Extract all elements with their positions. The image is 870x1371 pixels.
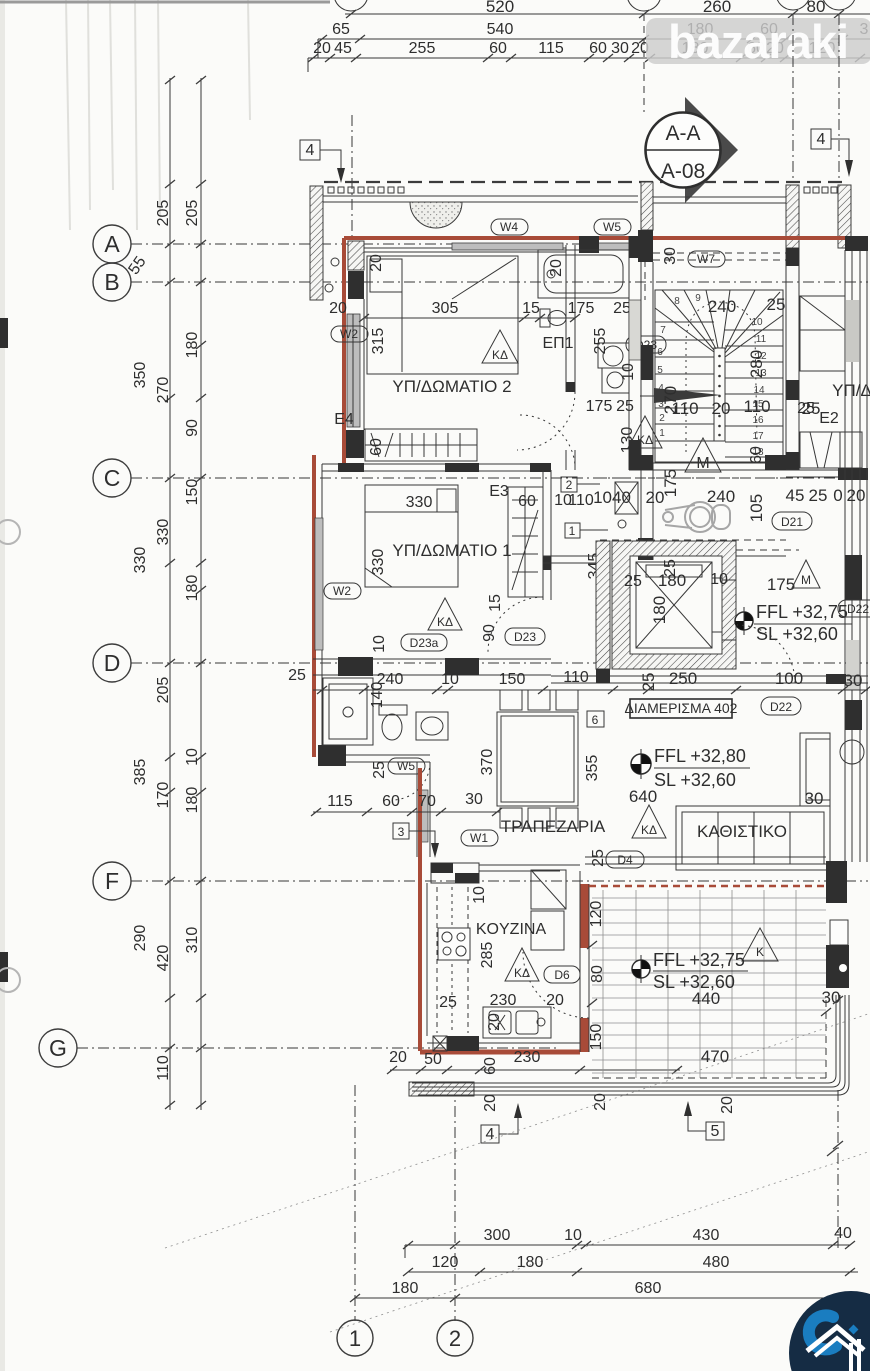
svg-text:90: 90	[184, 419, 201, 437]
svg-text:5: 5	[657, 365, 663, 376]
svg-text:330: 330	[132, 547, 149, 574]
svg-text:440: 440	[692, 989, 720, 1008]
svg-text:4: 4	[817, 131, 826, 148]
svg-text:480: 480	[703, 1254, 730, 1271]
svg-text:25: 25	[809, 486, 828, 505]
svg-text:W2: W2	[340, 327, 358, 341]
svg-text:SL +32,60: SL +32,60	[756, 624, 838, 644]
svg-text:20: 20	[548, 259, 565, 277]
svg-text:2: 2	[449, 1326, 461, 1351]
svg-text:50: 50	[424, 1051, 442, 1068]
svg-text:30: 30	[805, 789, 824, 808]
svg-text:180: 180	[650, 596, 669, 624]
svg-text:W4: W4	[500, 220, 518, 234]
svg-text:D: D	[104, 650, 121, 676]
svg-text:W1: W1	[470, 831, 488, 845]
svg-text:255: 255	[592, 328, 609, 355]
svg-text:0: 0	[833, 486, 842, 505]
svg-text:E3: E3	[489, 483, 509, 500]
svg-text:540: 540	[487, 21, 514, 38]
svg-text:280: 280	[747, 350, 766, 378]
svg-text:255: 255	[409, 40, 436, 57]
svg-text:ΚΔ: ΚΔ	[437, 615, 453, 629]
svg-text:KOYZINA: KOYZINA	[476, 921, 547, 938]
svg-text:25: 25	[439, 994, 457, 1011]
svg-text:1: 1	[659, 428, 665, 439]
svg-text:680: 680	[635, 1280, 662, 1297]
svg-text:110: 110	[155, 1055, 172, 1081]
svg-text:310: 310	[184, 927, 201, 954]
svg-text:170: 170	[155, 782, 172, 809]
svg-text:M: M	[801, 573, 811, 587]
svg-text:180: 180	[184, 332, 201, 359]
svg-text:ΥΠ/Δ: ΥΠ/Δ	[832, 381, 870, 400]
svg-text:10: 10	[471, 886, 488, 904]
svg-text:180: 180	[184, 787, 201, 814]
svg-text:180: 180	[517, 1254, 544, 1271]
svg-text:W5: W5	[603, 220, 621, 234]
svg-text:A-08: A-08	[661, 160, 705, 183]
svg-text:330: 330	[406, 494, 433, 511]
svg-text:60: 60	[368, 438, 385, 456]
svg-text:240: 240	[707, 487, 735, 506]
svg-text:240: 240	[708, 297, 736, 316]
svg-text:175: 175	[767, 575, 795, 594]
svg-text:25: 25	[624, 573, 642, 590]
svg-text:FFL +32,75: FFL +32,75	[653, 950, 745, 970]
svg-text:1: 1	[349, 1326, 361, 1351]
svg-text:15: 15	[522, 300, 540, 317]
svg-text:SL +32,60: SL +32,60	[654, 770, 736, 790]
svg-text:60: 60	[589, 40, 607, 57]
svg-text:ΚΑΘΙΣΤΙΚΟ: ΚΑΘΙΣΤΙΚΟ	[697, 822, 787, 841]
svg-text:175: 175	[568, 300, 595, 317]
svg-text:260: 260	[703, 0, 731, 16]
svg-text:140: 140	[369, 682, 386, 709]
svg-text:10: 10	[371, 635, 388, 653]
svg-text:bazaraki: bazaraki	[668, 15, 848, 68]
svg-text:E2: E2	[819, 410, 839, 427]
svg-text:C: C	[104, 465, 121, 491]
svg-text:W7: W7	[697, 252, 715, 266]
svg-text:10: 10	[751, 317, 763, 328]
svg-text:150: 150	[184, 479, 201, 506]
svg-text:D23: D23	[514, 630, 536, 644]
svg-text:K: K	[756, 945, 764, 959]
svg-text:105: 105	[747, 494, 766, 522]
svg-text:W2: W2	[333, 584, 351, 598]
svg-text:ΚΔ: ΚΔ	[641, 823, 657, 837]
svg-text:40: 40	[834, 1225, 852, 1242]
svg-text:175: 175	[586, 398, 613, 415]
svg-text:D4: D4	[617, 853, 633, 867]
svg-text:10: 10	[564, 1227, 582, 1244]
svg-text:ΔΙΑΜΕΡΙΣΜΑ 402: ΔΙΑΜΕΡΙΣΜΑ 402	[625, 700, 738, 716]
svg-text:25: 25	[371, 761, 388, 779]
svg-text:20: 20	[313, 40, 331, 57]
svg-text:70: 70	[418, 793, 436, 810]
svg-text:305: 305	[432, 300, 459, 317]
svg-text:120: 120	[432, 1254, 459, 1271]
svg-text:370: 370	[479, 749, 496, 776]
svg-text:205: 205	[155, 200, 172, 227]
svg-text:430: 430	[693, 1227, 720, 1244]
svg-text:25: 25	[662, 559, 679, 577]
svg-text:30: 30	[662, 247, 679, 265]
svg-text:300: 300	[484, 1227, 511, 1244]
svg-text:20: 20	[712, 399, 731, 418]
svg-text:20: 20	[592, 1093, 609, 1111]
svg-text:10: 10	[710, 571, 728, 588]
svg-text:250: 250	[669, 669, 697, 688]
svg-text:80: 80	[589, 965, 606, 983]
svg-text:4: 4	[306, 142, 315, 159]
svg-text:10: 10	[184, 748, 201, 766]
svg-text:5: 5	[711, 1123, 720, 1140]
svg-text:175: 175	[661, 469, 680, 497]
svg-text:E4: E4	[334, 411, 354, 428]
svg-text:ΕΠ1: ΕΠ1	[542, 335, 573, 352]
svg-text:FFL +32,80: FFL +32,80	[654, 746, 746, 766]
svg-text:20: 20	[482, 1094, 499, 1112]
svg-text:16: 16	[752, 415, 764, 426]
svg-text:4: 4	[486, 1126, 495, 1143]
svg-text:20: 20	[368, 254, 385, 272]
svg-text:20: 20	[719, 1096, 736, 1114]
svg-text:3: 3	[398, 825, 405, 839]
svg-text:1: 1	[569, 524, 576, 538]
svg-text:14: 14	[753, 385, 765, 396]
svg-text:25: 25	[613, 300, 631, 317]
svg-text:FFL +32,75: FFL +32,75	[756, 602, 848, 622]
svg-text:ΚΔ: ΚΔ	[492, 348, 508, 362]
svg-text:25: 25	[797, 400, 815, 417]
svg-text:355: 355	[584, 755, 601, 782]
svg-text:120: 120	[588, 901, 605, 928]
svg-text:205: 205	[155, 677, 172, 704]
svg-text:60: 60	[748, 446, 765, 464]
svg-text:290: 290	[132, 925, 149, 952]
svg-text:7: 7	[660, 325, 666, 336]
svg-text:330: 330	[370, 549, 387, 576]
svg-text:25: 25	[616, 398, 634, 415]
svg-text:100: 100	[775, 669, 803, 688]
svg-text:ΚΔ: ΚΔ	[514, 966, 530, 980]
svg-text:205: 205	[184, 200, 201, 227]
svg-text:150: 150	[499, 671, 526, 688]
svg-text:20: 20	[329, 300, 347, 317]
svg-text:25: 25	[639, 673, 658, 692]
svg-text:ΥΠ/ΔΩΜΑΤΙΟ 2: ΥΠ/ΔΩΜΑΤΙΟ 2	[392, 377, 511, 396]
svg-text:ΤΡΑΠΕΖΑΡΙΑ: ΤΡΑΠΕΖΑΡΙΑ	[501, 817, 606, 836]
svg-text:115: 115	[327, 793, 353, 810]
svg-text:D21: D21	[781, 515, 803, 529]
svg-text:D23a: D23a	[410, 636, 439, 650]
svg-text:60: 60	[518, 493, 536, 510]
svg-text:B: B	[104, 269, 119, 295]
svg-text:520: 520	[486, 0, 514, 16]
svg-text:30: 30	[465, 791, 483, 808]
svg-text:420: 420	[155, 945, 172, 972]
svg-text:6: 6	[657, 347, 663, 358]
svg-text:470: 470	[701, 1047, 729, 1066]
svg-text:D22: D22	[847, 602, 869, 616]
svg-text:25: 25	[288, 667, 306, 684]
svg-text:20: 20	[389, 1049, 407, 1066]
svg-text:270: 270	[155, 377, 172, 404]
svg-text:110: 110	[568, 492, 594, 509]
svg-text:110: 110	[671, 399, 698, 418]
svg-text:350: 350	[132, 362, 149, 389]
svg-text:45: 45	[786, 486, 805, 505]
svg-text:230: 230	[514, 1049, 541, 1066]
svg-text:25: 25	[767, 295, 786, 314]
svg-text:150: 150	[588, 1024, 605, 1051]
svg-text:1040: 1040	[593, 488, 631, 507]
svg-text:11: 11	[756, 334, 767, 345]
svg-text:17: 17	[752, 431, 764, 442]
svg-text:15: 15	[487, 594, 504, 612]
svg-text:230: 230	[490, 992, 517, 1009]
svg-text:6: 6	[592, 713, 599, 727]
svg-text:330: 330	[155, 519, 172, 546]
svg-text:20: 20	[546, 992, 564, 1009]
svg-text:30: 30	[611, 40, 629, 57]
svg-text:A-A: A-A	[665, 122, 700, 145]
svg-text:30: 30	[822, 988, 841, 1007]
svg-text:80: 80	[807, 0, 826, 16]
svg-text:315: 315	[370, 328, 387, 355]
svg-text:65: 65	[332, 21, 350, 38]
svg-text:385: 385	[132, 759, 149, 786]
svg-text:110: 110	[743, 397, 770, 416]
svg-text:2: 2	[566, 478, 573, 492]
svg-text:640: 640	[629, 787, 657, 806]
svg-text:115: 115	[538, 40, 564, 57]
svg-text:45: 45	[334, 40, 352, 57]
svg-text:D6: D6	[554, 968, 570, 982]
svg-text:20: 20	[847, 486, 866, 505]
svg-text:D22: D22	[770, 700, 792, 714]
svg-text:F: F	[105, 868, 119, 894]
svg-text:8: 8	[674, 296, 680, 307]
svg-text:9: 9	[695, 293, 701, 304]
svg-text:10: 10	[441, 671, 459, 688]
svg-text:A: A	[104, 231, 120, 257]
svg-text:G: G	[49, 1035, 67, 1061]
svg-text:60: 60	[382, 793, 400, 810]
svg-text:180: 180	[184, 575, 201, 602]
svg-text:W5: W5	[397, 759, 415, 773]
svg-text:285: 285	[479, 942, 496, 969]
svg-text:ΥΠ/ΔΩΜΑΤΙΟ 1: ΥΠ/ΔΩΜΑΤΙΟ 1	[392, 541, 511, 560]
svg-text:180: 180	[392, 1280, 419, 1297]
